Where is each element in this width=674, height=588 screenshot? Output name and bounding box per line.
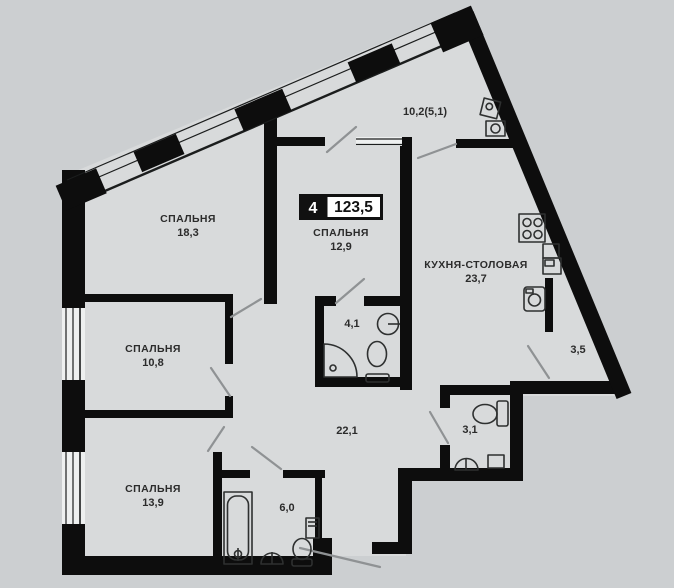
room-area-bedroom-1: 18,3 bbox=[177, 227, 198, 239]
wall-entrance-stub bbox=[372, 542, 400, 554]
wall-bedroom4-right-b bbox=[213, 452, 222, 564]
wall-bedroom1-bedroom2 bbox=[264, 98, 277, 304]
wall-bedroom2-bath1-b bbox=[364, 296, 402, 306]
wall-balcony-kitchen bbox=[456, 139, 518, 148]
window-bedroom3 bbox=[62, 308, 85, 380]
window-bedroom4 bbox=[62, 452, 85, 524]
room-area-storage: 3,5 bbox=[570, 344, 585, 356]
window-balcony-bedroom2 bbox=[356, 137, 402, 146]
room-area-hallway: 22,1 bbox=[336, 425, 357, 437]
room-area-wc: 3,1 bbox=[462, 424, 477, 436]
wall-storage-left bbox=[545, 278, 553, 332]
room-label-bedroom-3: СПАЛЬНЯ bbox=[125, 343, 181, 355]
room-label-bedroom-2: СПАЛЬНЯ bbox=[313, 227, 369, 239]
wall-storage-bottom bbox=[510, 381, 623, 394]
badge-total-area: 123,5 bbox=[334, 199, 373, 216]
wall-balcony-bedroom2 bbox=[277, 137, 325, 146]
wall-wc-left-b bbox=[440, 445, 450, 470]
wall-bedroom2-kitchen bbox=[400, 137, 412, 390]
room-label-bedroom-1: СПАЛЬНЯ bbox=[160, 213, 216, 225]
wall-bath1-bottom bbox=[315, 377, 410, 387]
wall-bath2-top-a bbox=[222, 470, 250, 478]
room-label-kitchen: КУХНЯ-СТОЛОВАЯ bbox=[424, 259, 528, 271]
badge-rooms-count: 4 bbox=[309, 200, 318, 217]
room-area-bedroom-2: 12,9 bbox=[330, 241, 351, 253]
wall-bedroom3-bottom bbox=[85, 410, 231, 418]
wall-bedroom1-bottom bbox=[85, 294, 228, 302]
room-area-kitchen: 23,7 bbox=[465, 273, 486, 285]
wall-bedroom4-right-a bbox=[213, 410, 222, 418]
room-area-bedroom-4: 13,9 bbox=[142, 497, 163, 509]
wall-wc-right bbox=[510, 388, 523, 480]
wall-entrance-right bbox=[398, 470, 412, 554]
room-area-bathroom-1: 4,1 bbox=[344, 318, 359, 330]
room-label-bedroom-4: СПАЛЬНЯ bbox=[125, 483, 181, 495]
room-area-balcony: 10,2(5,1) bbox=[403, 106, 447, 118]
floor-plan: 4 123,5 СПАЛЬНЯ 18,3 СПАЛЬНЯ 12,9 СПАЛЬН… bbox=[0, 0, 674, 588]
wall-bedroom3-right-a bbox=[225, 294, 233, 364]
room-area-bedroom-3: 10,8 bbox=[142, 357, 163, 369]
wall-wc-top bbox=[440, 385, 513, 395]
floor-plan-canvas: 4 123,5 СПАЛЬНЯ 18,3 СПАЛЬНЯ 12,9 СПАЛЬН… bbox=[0, 0, 674, 588]
wall-bath1-left bbox=[315, 300, 324, 387]
wall-bath2-top-b bbox=[283, 470, 325, 478]
room-area-bathroom-2: 6,0 bbox=[279, 502, 294, 514]
summary-badge: 4 123,5 bbox=[299, 194, 383, 220]
